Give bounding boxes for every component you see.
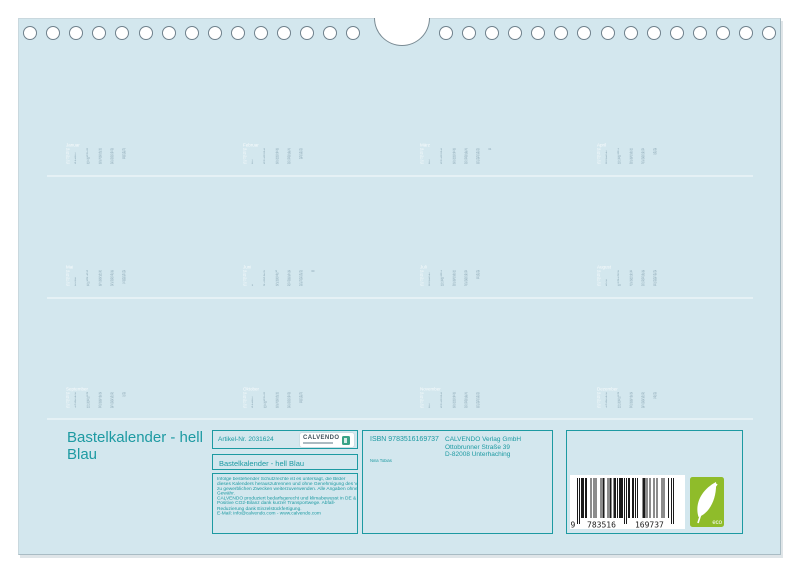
mini-month-calendar: AugustMo4111825Di5121926Mi6132027Do71421… <box>597 265 677 278</box>
mini-month-week-row: So6132027 <box>420 284 500 286</box>
author-name: Nina Tobias <box>370 459 392 463</box>
binding-hole <box>208 26 222 40</box>
mini-month-week-row: So4111825 <box>66 284 146 286</box>
article-number-box: Artikel-Nr. 2031624 CALVENDO <box>212 430 358 449</box>
binding-hole <box>670 26 684 40</box>
binding-hole <box>346 26 360 40</box>
binding-hole <box>739 26 753 40</box>
binding-hole <box>716 26 730 40</box>
binding-hole <box>624 26 638 40</box>
mini-month-week-row: So7142128 <box>597 406 677 408</box>
mini-month-calendar: JanuarMo6132027Di7142128Mi18152229Do2916… <box>66 143 146 156</box>
binding-hole <box>92 26 106 40</box>
mini-month-name: Oktober <box>243 387 323 392</box>
binding-hole <box>185 26 199 40</box>
mini-month-calendar: MärzMo310172431Di4111825Mi5121926Do61320… <box>420 143 500 156</box>
binding-hole <box>577 26 591 40</box>
barcode-digit-system: 9 <box>571 521 576 530</box>
binding-hole <box>23 26 37 40</box>
binding-hole <box>46 26 60 40</box>
mini-month-calendar: JuliMo7142128Di18152229Mi29162330Do31017… <box>420 265 500 278</box>
mini-month-calendar: OktoberMo6132027Di7142128Mi18152229Do291… <box>243 387 323 400</box>
mini-month-week-row: So310172431 <box>597 284 677 286</box>
binding-hole <box>554 26 568 40</box>
legal-text: Infolge bestehender Schutzrechte ist es … <box>217 477 358 516</box>
mini-month-name: September <box>66 387 146 392</box>
binding-hole <box>439 26 453 40</box>
mini-month-name: Februar <box>243 143 323 148</box>
binding-hole <box>531 26 545 40</box>
calvendo-logo-tagline <box>303 442 333 444</box>
binding-hole <box>693 26 707 40</box>
binding-hole <box>277 26 291 40</box>
mini-month-name: August <box>597 265 677 270</box>
binding-hole <box>115 26 129 40</box>
binding-hole <box>69 26 83 40</box>
mini-month-calendar: SeptemberMo18152229Di29162330Mi3101724Do… <box>66 387 146 400</box>
mini-month-week-row: So5121926 <box>243 406 323 408</box>
calvendo-logo-text: CALVENDO <box>303 436 339 441</box>
mini-month-calendar: NovemberMo3101724Di4111825Mi5121926Do613… <box>420 387 500 400</box>
legal-text-box: Infolge bestehender Schutzrechte ist es … <box>212 473 358 534</box>
hanging-notch <box>374 18 430 46</box>
publisher-address: CALVENDO Verlag GmbHOttobrunner Straße 3… <box>445 436 521 459</box>
publisher-address-line: Ottobrunner Straße 39 <box>445 444 521 452</box>
binding-hole <box>162 26 176 40</box>
mini-month-calendar: AprilMo7142128Di18152229Mi29162330Do3101… <box>597 143 677 156</box>
mini-month-name: Juni <box>243 265 323 270</box>
fold-line <box>47 175 753 177</box>
binding-hole <box>485 26 499 40</box>
binding-hole <box>508 26 522 40</box>
calendar-back-page: JanuarMo6132027Di7142128Mi18152229Do2916… <box>18 18 781 555</box>
binding-hole <box>254 26 268 40</box>
binding-hole <box>762 26 776 40</box>
isbn-number: ISBN 9783516169737 <box>370 436 439 443</box>
binding-hole <box>462 26 476 40</box>
mini-month-week-row: So291623 <box>243 162 323 164</box>
legal-text-line: E-Mail: info@calvendo.com - www.calvendo… <box>217 511 358 516</box>
publisher-address-line: CALVENDO Verlag GmbH <box>445 436 521 444</box>
eco-label: eco <box>712 520 722 526</box>
product-title-small: Bastelkalender - hell Blau <box>219 459 304 468</box>
barcode-bars: 9783516169737 <box>570 475 685 529</box>
binding-hole <box>601 26 615 40</box>
mini-month-calendar: JuniMo29162330Di3101724Mi4111825Do512192… <box>243 265 323 278</box>
mini-month-week-row: So7142128 <box>66 406 146 408</box>
fold-line <box>47 297 753 299</box>
barcode-digits-right: 169737 <box>635 521 664 530</box>
mini-month-week-row: So5121926 <box>66 162 146 164</box>
mini-month-name: März <box>420 143 500 148</box>
binding-hole <box>139 26 153 40</box>
calvendo-logo-icon <box>342 436 350 445</box>
mini-month-calendar: DezemberMo18152229Di29162330Mi310172431D… <box>597 387 677 400</box>
barcode-box: 9783516169737 eco <box>566 430 743 534</box>
binding-hole <box>300 26 314 40</box>
mini-month-name: April <box>597 143 677 148</box>
article-number: Artikel-Nr. 2031624 <box>218 436 274 443</box>
mini-month-calendar: MaiMo5121926Di6132027Mi7142128Do18152229… <box>66 265 146 278</box>
mini-month-name: Januar <box>66 143 146 148</box>
binding-hole <box>323 26 337 40</box>
isbn-publisher-box: ISBN 9783516169737 Nina Tobias CALVENDO … <box>362 430 553 534</box>
ean-barcode: 9783516169737 <box>570 475 685 529</box>
mini-month-week-row: So6132027 <box>597 162 677 164</box>
legal-text-line: zu gewerblichen Zwecken weiterzuverwende… <box>217 487 358 492</box>
product-title: Bastelkalender - hell Blau <box>67 430 227 463</box>
mini-month-week-row: So29162330 <box>420 406 500 408</box>
eco-logo: eco <box>690 477 724 527</box>
publisher-address-line: D-82008 Unterhaching <box>445 451 521 459</box>
binding-hole <box>647 26 661 40</box>
mini-month-calendar: FebruarMo3101724Di4111825Mi5121926Do6132… <box>243 143 323 156</box>
mini-month-name: Mai <box>66 265 146 270</box>
mini-month-name: November <box>420 387 500 392</box>
mini-month-week-row: So29162330 <box>420 162 500 164</box>
product-title-box: Bastelkalender - hell Blau <box>212 454 358 470</box>
binding-hole <box>231 26 245 40</box>
calvendo-logo: CALVENDO <box>300 433 354 447</box>
barcode-digits-left: 783516 <box>587 521 616 530</box>
mini-month-name: Juli <box>420 265 500 270</box>
mini-month-week-row: So18152229 <box>243 284 323 286</box>
mini-month-name: Dezember <box>597 387 677 392</box>
fold-line <box>47 418 753 420</box>
